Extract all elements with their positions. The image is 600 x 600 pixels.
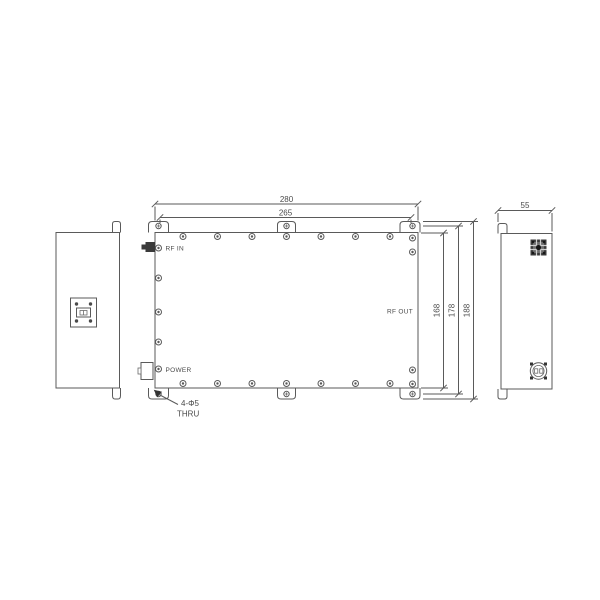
screw-icon — [410, 367, 416, 373]
mounting-tab — [113, 222, 121, 233]
screw-icon — [353, 381, 359, 387]
screw-icon — [284, 234, 290, 240]
dim-depth-value: 55 — [521, 201, 530, 210]
left-side-view — [56, 222, 121, 400]
tab-hole-icon — [410, 223, 415, 228]
screw-icon — [180, 381, 186, 387]
screw-icon — [387, 234, 393, 240]
screw-icon — [353, 234, 359, 240]
screw-icon — [318, 381, 324, 387]
waveguide-flange-icon — [71, 298, 97, 327]
screw-icon — [156, 339, 162, 345]
hole-note-line2: THRU — [177, 410, 199, 419]
tab-hole-icon — [156, 223, 161, 228]
tab-hole-icon — [284, 223, 289, 228]
screw-icon — [387, 381, 393, 387]
tab-hole-icon — [410, 391, 415, 396]
screw-icon — [318, 234, 324, 240]
screw-icon — [215, 234, 221, 240]
tab-hole-icon — [284, 391, 289, 396]
screw-icon — [249, 381, 255, 387]
mounting-tab — [498, 389, 507, 399]
dim-mount-hole-height-value: 178 — [448, 303, 457, 317]
dim-body-height-value: 168 — [433, 303, 442, 317]
rf-in-label: RF IN — [166, 246, 184, 253]
screw-icon — [156, 245, 162, 251]
dim-overall-width-value: 280 — [280, 195, 294, 204]
dim-depth: 55 — [495, 201, 555, 232]
front-view-body — [155, 233, 418, 389]
screw-icon — [249, 234, 255, 240]
screw-icon — [180, 234, 186, 240]
dim-mount-hole-width-value: 265 — [279, 209, 293, 218]
mounting-tab — [113, 388, 121, 399]
screw-icon — [410, 235, 416, 241]
power-connector-icon — [138, 363, 153, 380]
screw-icon — [156, 366, 162, 372]
drawing-canvas: RF IN POWER RF OUT 4-Φ5 THRU — [0, 0, 600, 600]
rf-connector-face-icon — [531, 240, 547, 256]
engineering-drawing: RF IN POWER RF OUT 4-Φ5 THRU — [0, 0, 600, 600]
screw-icon — [215, 381, 221, 387]
dim-mount-hole-width: 265 — [157, 209, 414, 224]
dim-body-height: 168 — [421, 230, 448, 391]
hole-note-line1: 4-Φ5 — [181, 399, 199, 408]
screw-icon — [410, 381, 416, 387]
power-label: POWER — [166, 367, 192, 374]
mounting-tab — [498, 224, 507, 234]
rf-out-label: RF OUT — [387, 309, 413, 316]
screw-icon — [284, 381, 290, 387]
screw-icon — [156, 309, 162, 315]
screw-icon — [156, 275, 162, 281]
power-connector-face-icon — [530, 363, 547, 380]
rf-in-connector-icon — [142, 242, 156, 252]
dim-overall-height-value: 188 — [463, 303, 472, 317]
front-view: RF IN POWER RF OUT 4-Φ5 THRU — [138, 222, 420, 419]
screw-icon — [410, 249, 416, 255]
right-side-view — [498, 224, 552, 400]
